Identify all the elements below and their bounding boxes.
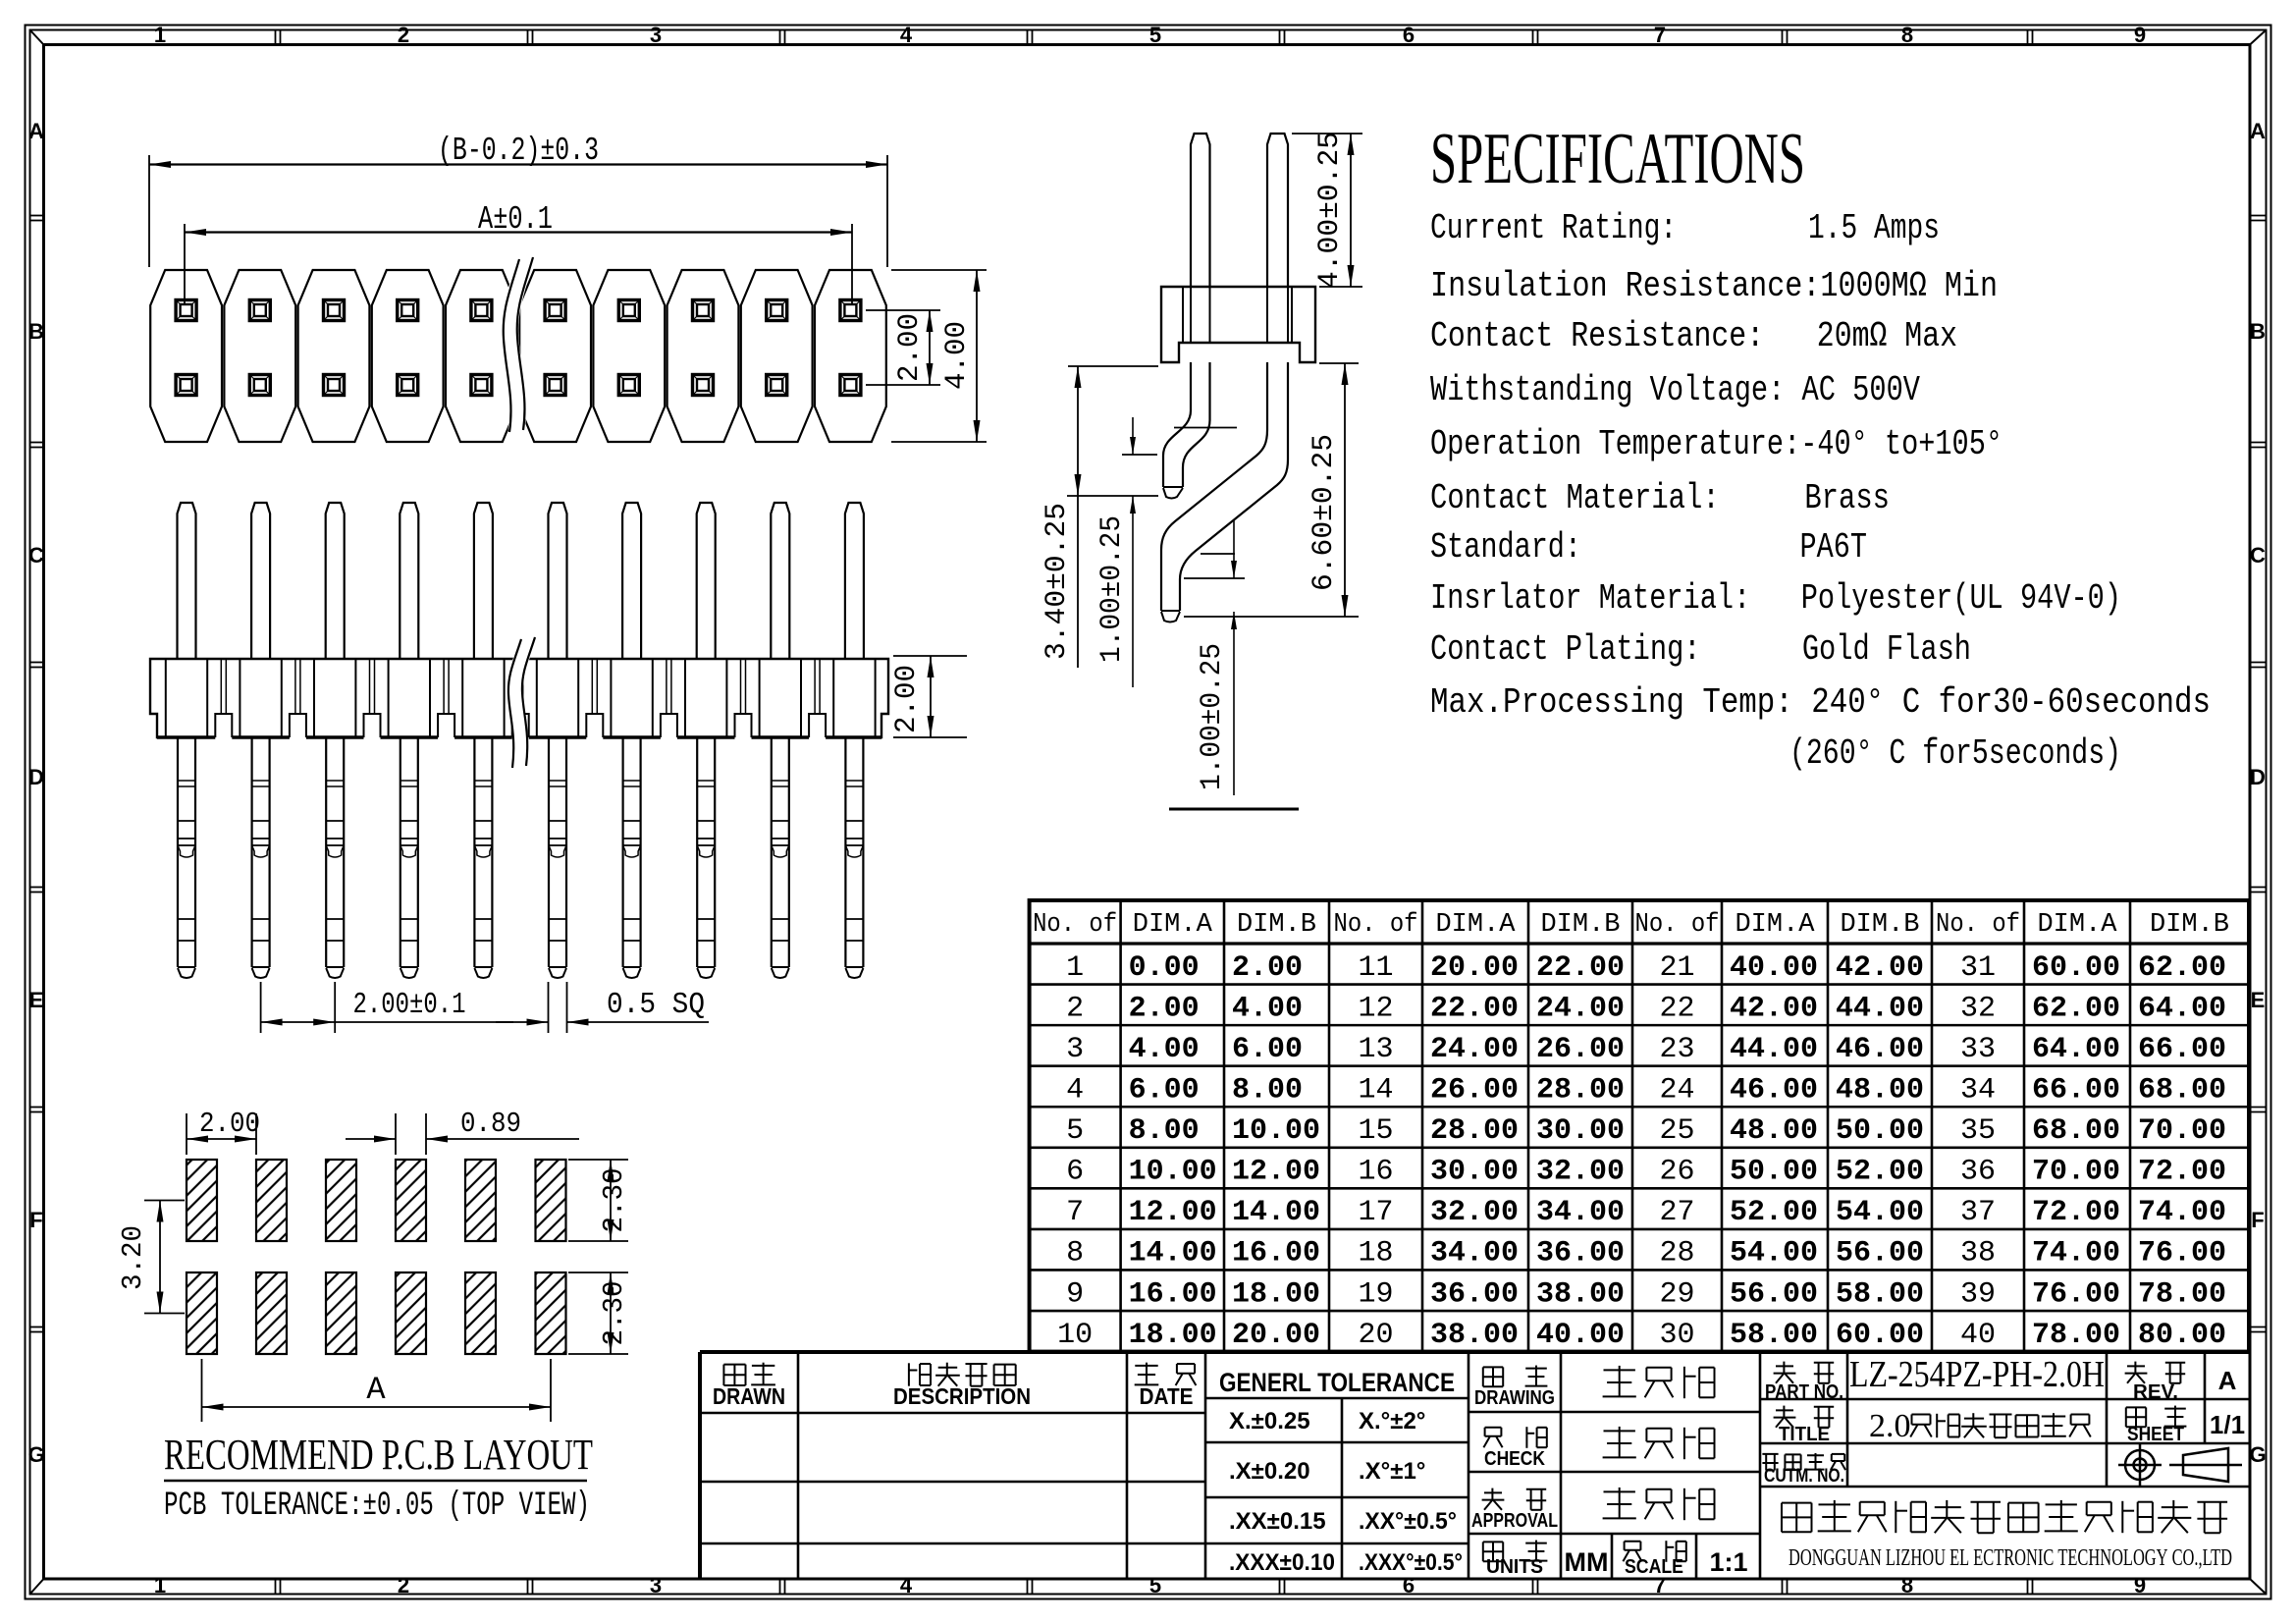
svg-text:3.20: 3.20 <box>117 1225 149 1290</box>
svg-text:37: 37 <box>1960 1196 1996 1229</box>
svg-text:G: G <box>2249 1442 2266 1467</box>
svg-text:32.00: 32.00 <box>1430 1196 1519 1229</box>
svg-text:14.00: 14.00 <box>1129 1237 1217 1271</box>
svg-text:SHEET: SHEET <box>2127 1424 2184 1445</box>
svg-text:52.00: 52.00 <box>1836 1156 1924 1189</box>
svg-text:12: 12 <box>1358 992 1393 1025</box>
svg-text:1:1: 1:1 <box>1709 1547 1747 1577</box>
svg-text:62.00: 62.00 <box>2138 951 2226 985</box>
svg-text:7: 7 <box>1066 1196 1084 1229</box>
svg-text:DIM.B: DIM.B <box>1840 910 1919 940</box>
svg-text:4.00: 4.00 <box>1232 992 1303 1025</box>
svg-text:MM: MM <box>1565 1547 1609 1577</box>
svg-text:44.00: 44.00 <box>1836 992 1924 1025</box>
svg-text:4.00: 4.00 <box>940 321 974 390</box>
svg-text:64.00: 64.00 <box>2032 1033 2120 1066</box>
svg-text:9: 9 <box>2134 1573 2146 1597</box>
svg-text:48.00: 48.00 <box>1836 1073 1924 1107</box>
svg-text:A: A <box>366 1372 386 1408</box>
svg-text:.XXX°±0.5°: .XXX°±0.5° <box>1359 1549 1463 1576</box>
svg-text:No. of: No. of <box>1635 910 1720 940</box>
svg-text:0.5 SQ: 0.5 SQ <box>607 988 705 1022</box>
svg-text:27: 27 <box>1659 1196 1694 1229</box>
svg-text:1.00±0.25: 1.00±0.25 <box>1196 643 1229 790</box>
svg-text:22: 22 <box>1659 992 1694 1025</box>
svg-text:6: 6 <box>1403 23 1415 47</box>
svg-text:2.30: 2.30 <box>598 1281 630 1346</box>
svg-text:1.00±0.25: 1.00±0.25 <box>1095 515 1129 663</box>
svg-text:66.00: 66.00 <box>2032 1073 2120 1107</box>
svg-text:4.00±0.25: 4.00±0.25 <box>1313 132 1347 289</box>
svg-text:6.60±0.25: 6.60±0.25 <box>1308 434 1341 591</box>
svg-text:78.00: 78.00 <box>2138 1277 2226 1311</box>
svg-text:0.89: 0.89 <box>460 1108 521 1140</box>
svg-text:42.00: 42.00 <box>1730 992 1818 1025</box>
svg-text:Insrlator Material: Polyeste: Insrlator Material: Polyester(UL 94V-0) <box>1430 578 2121 619</box>
svg-text:68.00: 68.00 <box>2032 1114 2120 1148</box>
svg-text:DRAWN: DRAWN <box>713 1383 785 1409</box>
svg-text:34.00: 34.00 <box>1430 1237 1519 1271</box>
svg-text:PART NO.: PART NO. <box>1765 1381 1843 1403</box>
svg-text:UNITS: UNITS <box>1486 1556 1543 1578</box>
svg-text:No. of: No. of <box>1033 910 1117 940</box>
svg-text:14: 14 <box>1358 1073 1393 1107</box>
svg-text:D: D <box>28 765 44 789</box>
svg-text:21: 21 <box>1659 951 1694 985</box>
svg-text:58.00: 58.00 <box>1836 1277 1924 1311</box>
svg-text:14.00: 14.00 <box>1232 1196 1320 1229</box>
svg-text:A: A <box>2250 119 2266 143</box>
svg-text:20.00: 20.00 <box>1232 1319 1320 1352</box>
svg-text:58.00: 58.00 <box>1730 1319 1818 1352</box>
svg-text:60.00: 60.00 <box>1836 1319 1924 1352</box>
svg-text:62.00: 62.00 <box>2032 992 2120 1025</box>
svg-text:.X±0.20: .X±0.20 <box>1229 1458 1310 1485</box>
svg-text:5: 5 <box>1149 1573 1161 1597</box>
svg-text:X.°±2°: X.°±2° <box>1359 1408 1425 1435</box>
svg-text:8: 8 <box>1066 1237 1084 1271</box>
svg-text:38.00: 38.00 <box>1536 1277 1625 1311</box>
svg-text:9: 9 <box>1066 1277 1084 1311</box>
svg-text:2.00: 2.00 <box>1232 951 1303 985</box>
svg-text:44.00: 44.00 <box>1730 1033 1818 1066</box>
svg-text:Insulation Resistance:1000MΩ M: Insulation Resistance:1000MΩ Min <box>1430 266 1998 306</box>
svg-text:48.00: 48.00 <box>1730 1114 1818 1148</box>
svg-text:CHECK: CHECK <box>1484 1448 1545 1470</box>
svg-text:.X°±1°: .X°±1° <box>1359 1458 1425 1485</box>
svg-text:8.00: 8.00 <box>1129 1114 1200 1148</box>
svg-text:15: 15 <box>1358 1114 1393 1148</box>
svg-text:56.00: 56.00 <box>1730 1277 1818 1311</box>
svg-text:C: C <box>28 543 44 568</box>
svg-text:56.00: 56.00 <box>1836 1237 1924 1271</box>
svg-text:72.00: 72.00 <box>2138 1156 2226 1189</box>
svg-text:32.00: 32.00 <box>1536 1156 1625 1189</box>
svg-text:APPROVAL: APPROVAL <box>1471 1510 1558 1532</box>
svg-text:33: 33 <box>1960 1033 1996 1066</box>
svg-text:34: 34 <box>1960 1073 1996 1107</box>
svg-text:.XXX±0.10: .XXX±0.10 <box>1229 1549 1335 1576</box>
svg-text:DIM.B: DIM.B <box>1237 910 1316 940</box>
svg-text:Current Rating: 1.5 Amp: Current Rating: 1.5 Amps <box>1430 208 1940 248</box>
svg-text:F: F <box>2251 1208 2264 1232</box>
svg-text:28: 28 <box>1659 1237 1694 1271</box>
svg-text:68.00: 68.00 <box>2138 1073 2226 1107</box>
svg-text:76.00: 76.00 <box>2032 1277 2120 1311</box>
svg-text:(260° C for5seconds): (260° C for5seconds) <box>1789 733 2121 774</box>
svg-text:Standard: PA6T: Standard: PA6T <box>1430 527 1867 568</box>
svg-text:23: 23 <box>1659 1033 1694 1066</box>
svg-text:60.00: 60.00 <box>2032 951 2120 985</box>
svg-text:20.00: 20.00 <box>1430 951 1519 985</box>
svg-text:26.00: 26.00 <box>1430 1073 1519 1107</box>
svg-text:6.00: 6.00 <box>1232 1033 1303 1066</box>
svg-text:24: 24 <box>1659 1073 1694 1107</box>
svg-text:6: 6 <box>1403 1573 1415 1597</box>
svg-text:36.00: 36.00 <box>1536 1237 1625 1271</box>
svg-text:Contact Resistance: 20mΩ Max: Contact Resistance: 20mΩ Max <box>1430 316 1957 356</box>
svg-text:8: 8 <box>1901 23 1913 47</box>
svg-text:22.00: 22.00 <box>1536 951 1625 985</box>
svg-text:18: 18 <box>1358 1237 1393 1271</box>
svg-text:46.00: 46.00 <box>1836 1033 1924 1066</box>
svg-text:4: 4 <box>900 1573 913 1597</box>
svg-text:CUTM. NO.: CUTM. NO. <box>1764 1466 1844 1487</box>
svg-text:40.00: 40.00 <box>1536 1319 1625 1352</box>
svg-text:46.00: 46.00 <box>1730 1073 1818 1107</box>
svg-text:DATE: DATE <box>1140 1383 1194 1409</box>
svg-text:8: 8 <box>1901 1573 1913 1597</box>
svg-text:2: 2 <box>398 1573 409 1597</box>
svg-text:16.00: 16.00 <box>1129 1277 1217 1311</box>
svg-text:F: F <box>29 1208 42 1232</box>
svg-text:74.00: 74.00 <box>2032 1237 2120 1271</box>
svg-text:70.00: 70.00 <box>2032 1156 2120 1189</box>
svg-text:D: D <box>2250 765 2266 789</box>
svg-text:Withstanding Voltage: AC 500V: Withstanding Voltage: AC 500V <box>1430 370 1920 410</box>
svg-text:1: 1 <box>1066 951 1084 985</box>
svg-text:6: 6 <box>1066 1156 1084 1189</box>
svg-text:18.00: 18.00 <box>1232 1277 1320 1311</box>
svg-text:52.00: 52.00 <box>1730 1196 1818 1229</box>
svg-text:7: 7 <box>1654 23 1666 47</box>
svg-text:2.0: 2.0 <box>1869 1408 1911 1444</box>
svg-text:DRAWING: DRAWING <box>1474 1387 1555 1409</box>
svg-text:No. of: No. of <box>1334 910 1418 940</box>
svg-text:Contact Plating: Gold Fla: Contact Plating: Gold Flash <box>1430 629 1971 670</box>
svg-text:24.00: 24.00 <box>1536 992 1625 1025</box>
svg-text:TITLE: TITLE <box>1779 1424 1830 1445</box>
svg-text:8.00: 8.00 <box>1232 1073 1303 1107</box>
svg-text:16: 16 <box>1358 1156 1393 1189</box>
svg-text:40.00: 40.00 <box>1730 951 1818 985</box>
svg-text:DIM.A: DIM.A <box>1133 910 1213 940</box>
svg-text:C: C <box>2250 543 2266 568</box>
svg-text:28.00: 28.00 <box>1430 1114 1519 1148</box>
svg-text:66.00: 66.00 <box>2138 1033 2226 1066</box>
svg-text:29: 29 <box>1659 1277 1694 1311</box>
svg-text:76.00: 76.00 <box>2138 1237 2226 1271</box>
svg-text:26.00: 26.00 <box>1536 1033 1625 1066</box>
svg-text:50.00: 50.00 <box>1836 1114 1924 1148</box>
svg-text:A: A <box>2218 1366 2237 1395</box>
svg-text:54.00: 54.00 <box>1730 1237 1818 1271</box>
svg-text:31: 31 <box>1960 951 1996 985</box>
svg-text:DESCRIPTION: DESCRIPTION <box>893 1383 1031 1409</box>
svg-text:2.30: 2.30 <box>598 1168 630 1233</box>
svg-text:Max.Processing Temp: 240° C fo: Max.Processing Temp: 240° C for30-60seco… <box>1430 682 2211 723</box>
svg-text:REV.: REV. <box>2133 1381 2178 1403</box>
svg-text:DIM.A: DIM.A <box>1435 910 1516 940</box>
svg-text:24.00: 24.00 <box>1430 1033 1519 1066</box>
svg-text:RECOMMEND P.C.B LAYOUT: RECOMMEND P.C.B LAYOUT <box>164 1431 593 1479</box>
svg-text:72.00: 72.00 <box>2032 1196 2120 1229</box>
svg-text:E: E <box>29 988 44 1012</box>
svg-text:20: 20 <box>1358 1319 1393 1352</box>
svg-text:DONGGUAN LIZHOU EL ECTRONIC TE: DONGGUAN LIZHOU EL ECTRONIC TECHNOLOGY C… <box>1789 1545 2232 1571</box>
svg-text:12.00: 12.00 <box>1232 1156 1320 1189</box>
svg-text:Operation Temperature:-40° to+: Operation Temperature:-40° to+105° <box>1430 424 2002 464</box>
svg-text:70.00: 70.00 <box>2138 1114 2226 1148</box>
svg-text:2.00±0.1: 2.00±0.1 <box>353 988 466 1022</box>
svg-text:LZ-254PZ-PH-2.0H: LZ-254PZ-PH-2.0H <box>1849 1354 2105 1395</box>
svg-text:12.00: 12.00 <box>1129 1196 1217 1229</box>
svg-text:E: E <box>2251 988 2266 1012</box>
svg-text:2.00: 2.00 <box>893 313 927 382</box>
svg-text:10.00: 10.00 <box>1232 1114 1320 1148</box>
svg-text:2.00: 2.00 <box>199 1108 260 1140</box>
svg-text:A: A <box>28 119 44 143</box>
svg-text:0.00: 0.00 <box>1129 951 1200 985</box>
svg-text:10: 10 <box>1057 1319 1093 1352</box>
svg-text:SPECIFICATIONS: SPECIFICATIONS <box>1430 119 1805 199</box>
svg-text:3: 3 <box>1066 1033 1084 1066</box>
svg-text:3: 3 <box>650 23 662 47</box>
svg-text:22.00: 22.00 <box>1430 992 1519 1025</box>
svg-text:36.00: 36.00 <box>1430 1277 1519 1311</box>
svg-text:Contact Material: Brass: Contact Material: Brass <box>1430 478 1890 518</box>
svg-text:74.00: 74.00 <box>2138 1196 2226 1229</box>
svg-text:PCB TOLERANCE:±0.05 (TOP VIEW): PCB TOLERANCE:±0.05 (TOP VIEW) <box>164 1488 590 1525</box>
svg-text:18.00: 18.00 <box>1129 1319 1217 1352</box>
svg-text:1/1: 1/1 <box>2210 1410 2245 1439</box>
svg-text:GENERL TOLERANCE: GENERL TOLERANCE <box>1219 1368 1455 1397</box>
svg-text:4.00: 4.00 <box>1129 1033 1200 1066</box>
svg-text:4: 4 <box>1066 1073 1084 1107</box>
svg-text:36: 36 <box>1960 1156 1996 1189</box>
svg-text:No. of: No. of <box>1936 910 2020 940</box>
svg-text:30.00: 30.00 <box>1430 1156 1519 1189</box>
svg-text:38: 38 <box>1960 1237 1996 1271</box>
svg-text:11: 11 <box>1358 951 1393 985</box>
svg-text:26: 26 <box>1659 1156 1694 1189</box>
svg-text:25: 25 <box>1659 1114 1694 1148</box>
svg-text:50.00: 50.00 <box>1730 1156 1818 1189</box>
svg-text:13: 13 <box>1358 1033 1393 1066</box>
svg-text:42.00: 42.00 <box>1836 951 1924 985</box>
svg-text:30: 30 <box>1659 1319 1694 1352</box>
svg-text:17: 17 <box>1358 1196 1393 1229</box>
svg-text:5: 5 <box>1149 23 1161 47</box>
svg-text:SCALE: SCALE <box>1625 1556 1683 1578</box>
svg-text:38.00: 38.00 <box>1430 1319 1519 1352</box>
svg-text:28.00: 28.00 <box>1536 1073 1625 1107</box>
svg-text:DIM.B: DIM.B <box>1540 910 1620 940</box>
svg-text:2: 2 <box>1066 992 1084 1025</box>
svg-text:DIM.A: DIM.A <box>2037 910 2117 940</box>
svg-text:4: 4 <box>900 23 913 47</box>
svg-text:2.00: 2.00 <box>890 665 924 733</box>
svg-text:40: 40 <box>1960 1319 1996 1352</box>
svg-text:DIM.A: DIM.A <box>1735 910 1815 940</box>
svg-text:1: 1 <box>154 23 166 47</box>
svg-text:16.00: 16.00 <box>1232 1237 1320 1271</box>
svg-text:G: G <box>27 1442 44 1467</box>
svg-text:2: 2 <box>398 23 409 47</box>
svg-text:35: 35 <box>1960 1114 1996 1148</box>
svg-text:6.00: 6.00 <box>1129 1073 1200 1107</box>
svg-text:32: 32 <box>1960 992 1996 1025</box>
svg-text:30.00: 30.00 <box>1536 1114 1625 1148</box>
svg-text:10.00: 10.00 <box>1129 1156 1217 1189</box>
svg-text:3: 3 <box>650 1573 662 1597</box>
svg-text:19: 19 <box>1358 1277 1393 1311</box>
svg-text:2.00: 2.00 <box>1129 992 1200 1025</box>
svg-text:B: B <box>2250 319 2266 344</box>
svg-text:5: 5 <box>1066 1114 1084 1148</box>
svg-text:54.00: 54.00 <box>1836 1196 1924 1229</box>
svg-text:X.±0.25: X.±0.25 <box>1229 1408 1310 1435</box>
svg-text:.XX°±0.5°: .XX°±0.5° <box>1359 1508 1457 1535</box>
svg-text:80.00: 80.00 <box>2138 1319 2226 1352</box>
svg-text:1: 1 <box>154 1573 166 1597</box>
svg-text:78.00: 78.00 <box>2032 1319 2120 1352</box>
svg-text:.XX±0.15: .XX±0.15 <box>1229 1508 1326 1535</box>
svg-text:39: 39 <box>1960 1277 1996 1311</box>
svg-text:DIM.B: DIM.B <box>2150 910 2229 940</box>
svg-text:34.00: 34.00 <box>1536 1196 1625 1229</box>
svg-text:64.00: 64.00 <box>2138 992 2226 1025</box>
svg-text:B: B <box>28 319 44 344</box>
svg-text:9: 9 <box>2134 23 2146 47</box>
svg-text:3.40±0.25: 3.40±0.25 <box>1041 503 1074 660</box>
